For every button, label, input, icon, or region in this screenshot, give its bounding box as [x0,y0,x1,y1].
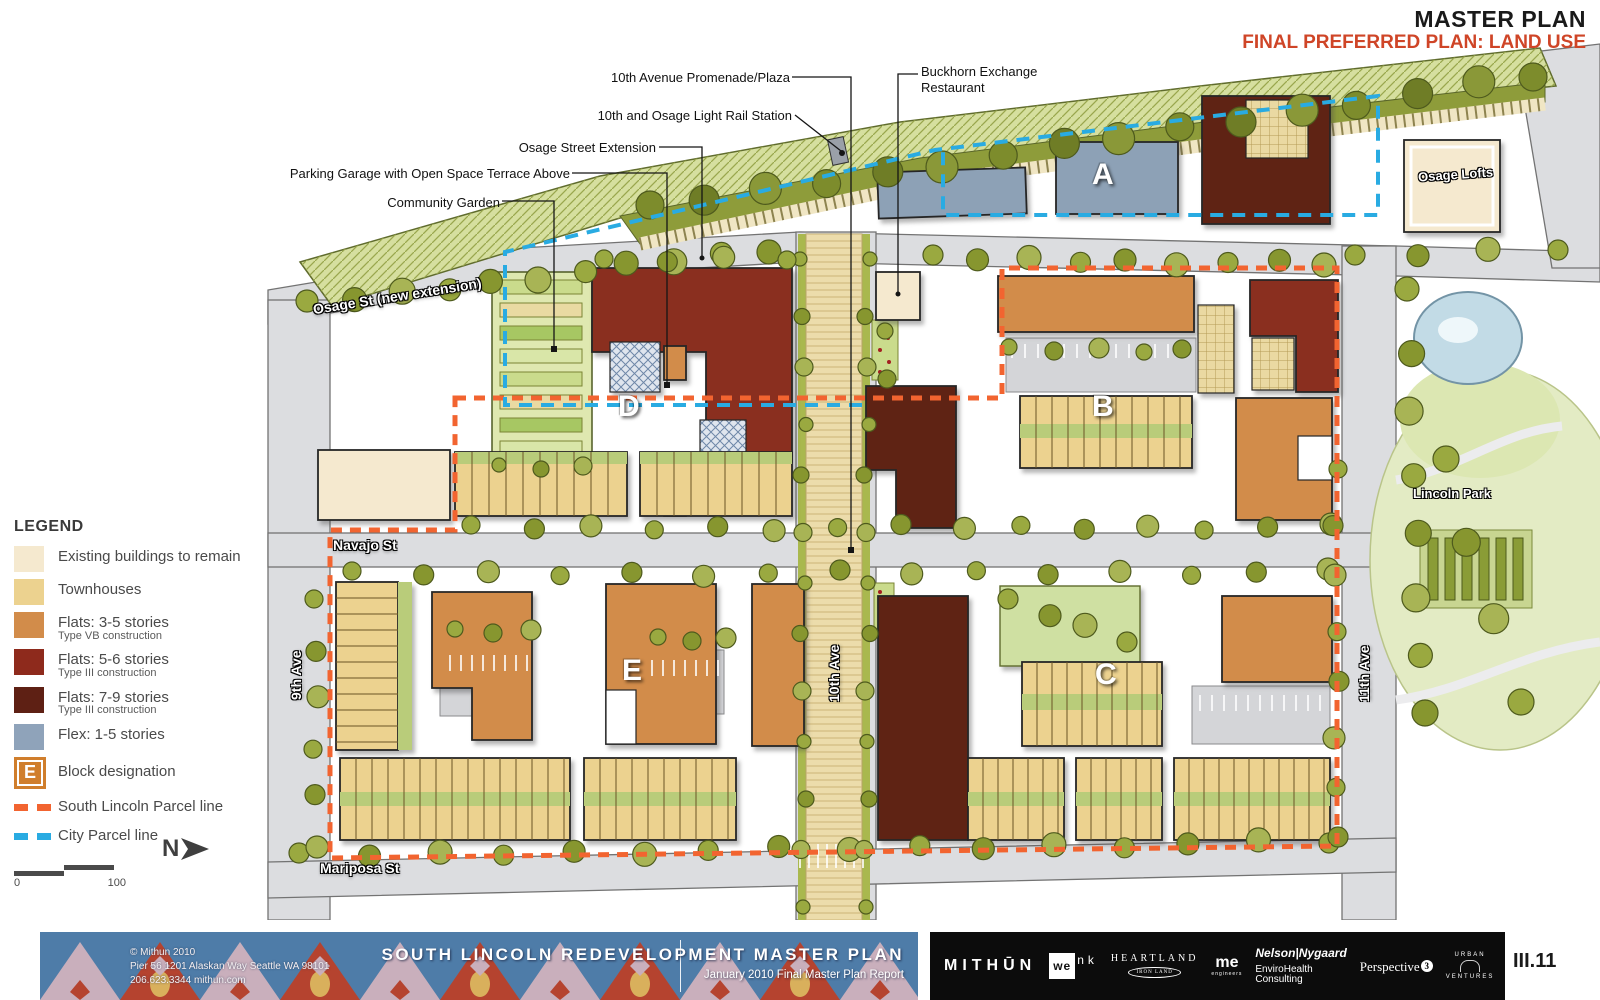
legend-label: Flats: 3-5 stories Type VB construction [58,612,169,642]
legend-label: Flex: 1-5 stories [58,724,165,743]
label-lincoln-park: Lincoln Park [1413,486,1491,501]
block-label-d: D [618,390,640,424]
parcel-line-swatch [14,833,52,840]
perspective3-logo: Perspective 3 [1360,960,1433,973]
townhouse-yard-strip [640,452,792,464]
ninth-ave-street [268,300,330,920]
master-plan-page: MASTER PLAN FINAL PREFERRED PLAN: LAND U… [0,0,1600,1000]
nelson-nygaard-logo: Nelson|Nygaard [1255,947,1346,959]
mithun-logo: MITHŪN [944,957,1036,975]
heartland-logo-seal: IRON LAND [1128,967,1180,978]
plan-title-block: SOUTH LINCOLN REDEVELOPMENT MASTER PLAN … [381,945,904,981]
block-label-c: C [1095,658,1117,692]
legend-label: Block designation [58,757,176,780]
legend-label-main: Flats: 5-6 stories [58,652,169,668]
legend-swatch [14,687,44,713]
annotation-light-rail-station: 10th and Osage Light Rail Station [530,108,792,124]
legend-swatch [14,579,44,605]
block-c-flats-7-9 [878,596,968,840]
north-arrow: N [162,835,211,863]
parcel-line-swatch [14,804,52,811]
block-b-courtyard [1252,338,1294,390]
legend-label-main: Flats: 7-9 stories [58,690,169,706]
plan-title: SOUTH LINCOLN REDEVELOPMENT MASTER PLAN [381,945,904,965]
heartland-logo-text: HEARTLAND [1111,954,1199,964]
scale-min: 0 [14,877,20,889]
townhouse-yard-strip [398,582,412,750]
label-navajo-st: Navajo St [333,537,397,553]
page-title: MASTER PLAN [1242,6,1586,32]
contact-line: 206.623.3344 mithun.com [130,974,329,988]
legend-title: LEGEND [14,518,270,536]
townhouse-yard-strip [1076,792,1162,806]
legend-item-flats-3-5: Flats: 3-5 stories Type VB construction [14,612,270,642]
nelson-nygaard-enviro-logos: Nelson|Nygaard EnviroHealth Consulting [1255,947,1346,985]
legend-label-sub: Type III construction [58,705,169,717]
north-letter: N [162,835,179,863]
legend-item-block-designation: E Block designation [14,757,270,789]
block-b-terrace [1198,305,1234,393]
block-c-courtyard-green [1000,586,1140,666]
legend-label-main: Flats: 3-5 stories [58,615,169,631]
sheet-titles: MASTER PLAN FINAL PREFERRED PLAN: LAND U… [1242,6,1586,54]
legend-item-flats-7-9: Flats: 7-9 stories Type III construction [14,687,270,717]
townhouse-yard-strip [1174,792,1330,806]
legend: LEGEND Existing buildings to remain Town… [14,518,270,889]
pool-highlight [1438,317,1478,343]
legend-label: Flats: 5-6 stories Type III construction [58,649,169,679]
annotation-buckhorn: Buckhorn Exchange Restaurant [921,64,1051,95]
legend-label: Existing buildings to remain [58,546,241,565]
page-number: III.11 [1513,950,1556,973]
perspective-logo-col: Perspective 3 [1360,960,1433,973]
page-subtitle: FINAL PREFERRED PLAN: LAND USE [1242,32,1586,54]
scale-labels: 0 100 [14,877,126,889]
north-arrow-icon [181,838,211,860]
urban-ventures-logo: URBAN VENTURES [1446,952,1495,980]
legend-item-south-lincoln-parcel: South Lincoln Parcel line [14,796,270,815]
envirohealth-logo: EnviroHealth Consulting [1255,965,1346,985]
block-e-townhouses-west [336,582,398,750]
plan-subtitle: January 2010 Final Master Plan Report [381,969,904,981]
scale-segment [64,865,114,870]
wenk-logo: we nk [1049,953,1098,979]
block-c-flats-ne [1222,596,1332,682]
urban-logo-top: URBAN [1455,952,1486,958]
legend-item-flats-5-6: Flats: 5-6 stories Type III construction [14,649,270,679]
legend-item-city-parcel: City Parcel line [14,825,270,844]
block-label-b: B [1092,390,1114,424]
scale-segment [14,871,64,876]
legend-label-sub: Type III construction [58,668,169,680]
label-ninth-ave: 9th Ave [288,650,304,700]
townhouse-yard-strip [968,792,1064,806]
heartland-logo: HEARTLAND IRON LAND [1111,954,1199,978]
legend-swatch [14,546,44,572]
legend-label: Townhouses [58,579,141,598]
block-label-e: E [622,654,642,688]
legend-label: City Parcel line [58,825,158,844]
me-logo-text: me [1215,955,1238,971]
townhouse-yard-strip [584,792,736,806]
block-label-a: A [1092,158,1114,192]
perspective-logo-number: 3 [1421,960,1433,972]
legend-swatch [14,724,44,750]
scale-bar: N [14,865,114,877]
wenk-logo-text: nk [1077,953,1098,967]
annotation-promenade: 10th Avenue Promenade/Plaza [558,70,790,86]
label-eleventh-ave: 11th Ave [1356,645,1372,702]
scale-max: 100 [108,877,126,889]
urban-logo-icon [1460,960,1480,972]
block-b-flats-notch [1298,436,1332,480]
me-logo-sub: engineers [1211,972,1242,977]
block-designation-letter: E [17,760,43,786]
block-e-flats-notch [606,690,636,744]
me-engineers-logo: me engineers [1211,955,1242,977]
dha-logo-sub: DENVERHOUSINGAUTHORITY [1520,977,1600,983]
community-garden [492,272,592,467]
legend-item-existing: Existing buildings to remain [14,546,270,572]
urban-logo-bottom: VENTURES [1446,974,1495,980]
consultant-logo-bar: MITHŪN we nk HEARTLAND IRON LAND me engi… [930,932,1505,1000]
perspective-logo-text: Perspective [1360,960,1420,973]
label-mariposa-st: Mariposa St [320,860,399,876]
annotation-osage-extension: Osage Street Extension [430,140,656,156]
existing-building-navajo [318,450,450,520]
block-d-trellis-1 [610,342,660,392]
annotation-community-garden: Community Garden [302,195,500,211]
legend-label-sub: Type VB construction [58,631,169,643]
legend-item-townhouses: Townhouses [14,579,270,605]
block-designation-swatch: E [14,757,46,789]
annotation-parking-garage: Parking Garage with Open Space Terrace A… [250,166,570,182]
copyright-block: © Mithun 2010 Pier 56 1201 Alaskan Way S… [130,946,329,988]
block-b-flats-north [998,276,1194,332]
townhouse-yard-strip [1020,424,1192,438]
legend-label: South Lincoln Parcel line [58,796,223,815]
townhouse-yard-strip [340,792,570,806]
townhouse-yard-strip [1022,694,1162,710]
copyright-line: © Mithun 2010 [130,946,329,960]
address-line: Pier 56 1201 Alaskan Way Seattle WA 9810… [130,960,329,974]
legend-swatch [14,649,44,675]
legend-label: Flats: 7-9 stories Type III construction [58,687,169,717]
block-e-flats-3 [752,584,804,746]
label-tenth-ave: 10th Ave [826,645,842,702]
osage-lofts-building [1404,140,1500,232]
footer-pattern-strip: © Mithun 2010 Pier 56 1201 Alaskan Way S… [40,932,918,1000]
legend-item-flex: Flex: 1-5 stories [14,724,270,750]
wenk-logo-box: we [1049,953,1075,979]
legend-swatch [14,612,44,638]
